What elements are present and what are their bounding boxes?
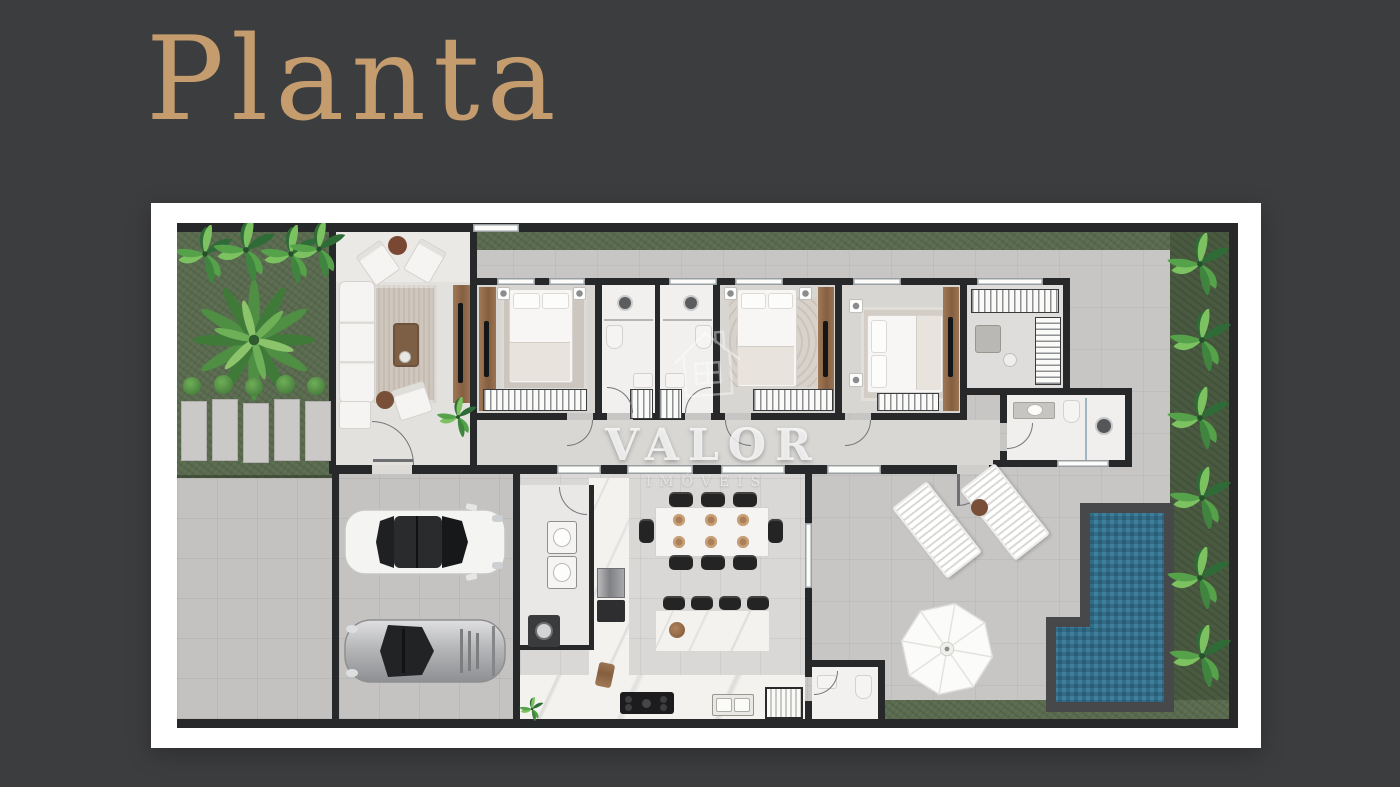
bedroom-3-tv: [948, 317, 953, 377]
wall-segment: [332, 473, 339, 719]
burner: [625, 704, 632, 711]
blanket: [916, 316, 941, 390]
coffee-table-decor: [399, 351, 411, 363]
dining-chair: [733, 555, 757, 570]
wall-segment: [878, 660, 885, 719]
washing-machine-icon: [528, 615, 560, 647]
entry-door-leaf: [373, 459, 413, 462]
garden-edge: [177, 475, 332, 478]
window: [853, 278, 901, 285]
stepping-stone: [212, 399, 238, 461]
dining-chair: [701, 492, 725, 507]
nightstand: [497, 287, 510, 300]
stepping-stone: [305, 401, 331, 461]
toilet: [1063, 400, 1080, 423]
burner: [660, 704, 667, 711]
shower-head-icon: [1097, 419, 1111, 433]
pillow: [768, 293, 793, 309]
house-watermark-icon: [653, 306, 760, 417]
wall-segment: [1063, 278, 1070, 395]
nightstand: [799, 287, 812, 300]
shower-glass: [1085, 398, 1087, 460]
pool: [1042, 500, 1178, 716]
driveway: [177, 478, 332, 719]
monstera-plant-icon: [1167, 233, 1233, 295]
shower-head-icon: [685, 297, 697, 309]
basin: [553, 563, 571, 582]
tv: [458, 303, 463, 383]
wall-segment: [1125, 388, 1132, 467]
window: [549, 278, 585, 285]
place-setting: [737, 536, 749, 548]
bar-stool: [719, 596, 741, 610]
photo-frame: VALOR IMÓVEIS: [151, 203, 1261, 748]
oven: [597, 600, 625, 622]
wall-segment: [1000, 395, 1007, 423]
bedroom-1-bed: [509, 289, 573, 383]
garden-shrub: [214, 375, 233, 394]
side-yard-grass: [474, 232, 1174, 250]
umbrella-icon: [899, 601, 995, 697]
nook-side-table: [388, 236, 407, 255]
garden-shrub: [276, 375, 295, 394]
closet-stool: [1003, 353, 1017, 367]
monstera-plant-icon: [1167, 547, 1233, 609]
basin: [716, 698, 732, 712]
basin: [734, 698, 750, 712]
nightstand: [849, 373, 863, 387]
watermark-title: VALOR: [605, 420, 809, 471]
white-car-icon: [342, 503, 508, 581]
bar-stool: [747, 596, 769, 610]
entry-door-opening: [372, 465, 412, 474]
monstera-plant-icon: [289, 223, 349, 277]
window: [669, 278, 717, 285]
refrigerator-icon: [597, 568, 625, 598]
sofa: [339, 281, 375, 403]
window: [473, 224, 519, 232]
monstera-plant-icon: [1169, 625, 1235, 687]
place-setting: [705, 536, 717, 548]
stepping-stone: [274, 399, 300, 461]
silver-car-icon: [342, 611, 508, 691]
place-setting: [673, 536, 685, 548]
wall-segment: [967, 388, 1132, 395]
bedroom-1-tv: [484, 321, 489, 377]
dining-chair: [733, 492, 757, 507]
window: [735, 278, 783, 285]
door-leaf: [957, 474, 960, 506]
shower-head-icon: [619, 297, 631, 309]
lounger-side-table: [971, 499, 988, 516]
place-setting: [705, 514, 717, 526]
window: [827, 465, 881, 474]
wall-segment: [805, 667, 812, 677]
dining-chair: [639, 519, 654, 543]
garden-shrub: [245, 378, 263, 396]
sofa-chaise: [339, 401, 371, 429]
pool-water: [1051, 508, 1169, 707]
pillow: [542, 293, 569, 309]
wall-segment: [835, 278, 842, 420]
wall-segment: [805, 701, 812, 719]
nightstand: [724, 287, 737, 300]
sliding-door: [805, 523, 812, 588]
bedroom-2-tv: [823, 321, 828, 377]
wall-segment: [595, 278, 602, 420]
burner: [642, 699, 651, 708]
dining-chair: [768, 519, 783, 543]
cooktop-icon: [620, 692, 674, 714]
burner: [625, 696, 632, 703]
monstera-plant-icon: [1167, 387, 1233, 449]
place-setting: [737, 514, 749, 526]
side-table: [376, 391, 394, 409]
blanket: [510, 342, 570, 381]
stepping-stone: [181, 401, 207, 461]
wall-segment: [477, 413, 567, 420]
watermark: VALOR IMÓVEIS: [605, 309, 809, 493]
monstera-plant-icon: [1169, 467, 1235, 529]
wall-segment: [871, 413, 967, 420]
dining-chair: [669, 492, 693, 507]
washer-door: [535, 622, 553, 640]
potted-plant-icon: [519, 697, 545, 721]
serving-bowl: [669, 622, 685, 638]
laundry-sink: [547, 556, 577, 589]
garden-shrub: [307, 377, 325, 395]
wall-segment: [589, 485, 594, 650]
dining-chair: [669, 555, 693, 570]
grill: [765, 687, 803, 719]
pillow: [871, 355, 887, 388]
window: [977, 278, 1043, 285]
wardrobe: [877, 393, 939, 411]
wardrobe: [483, 389, 587, 411]
bedroom-3-bed: [867, 315, 943, 393]
nightstand: [573, 287, 586, 300]
wall-segment: [513, 473, 520, 719]
kitchen-sink: [712, 694, 754, 716]
page-title: Planta: [146, 10, 563, 149]
pillow: [513, 293, 540, 309]
page-background: Planta: [0, 0, 1400, 787]
bar-stool: [691, 596, 713, 610]
laundry-sink: [547, 521, 577, 554]
nightstand: [849, 299, 863, 313]
master-sink: [1027, 404, 1043, 416]
watermark-subtitle: IMÓVEIS: [605, 474, 809, 490]
potted-plant-icon: [437, 397, 479, 437]
wall-segment: [805, 660, 885, 667]
closet-wardrobe: [1035, 317, 1061, 385]
garden-shrub: [183, 377, 201, 395]
place-setting: [673, 514, 685, 526]
wall-segment: [960, 278, 967, 420]
closet-vanity: [975, 325, 1001, 353]
stepping-stone: [243, 403, 269, 463]
window: [1057, 460, 1109, 467]
closet-wardrobe: [971, 289, 1059, 313]
dining-chair: [701, 555, 725, 570]
burner: [660, 696, 667, 703]
window: [497, 278, 535, 285]
floor-plan: VALOR IMÓVEIS: [177, 223, 1238, 728]
monstera-plant-icon: [1169, 309, 1235, 371]
bar-stool: [663, 596, 685, 610]
pillow: [871, 320, 887, 353]
window: [557, 465, 601, 474]
wall-segment: [177, 719, 1238, 728]
toilet: [855, 675, 872, 699]
basin: [553, 528, 571, 547]
